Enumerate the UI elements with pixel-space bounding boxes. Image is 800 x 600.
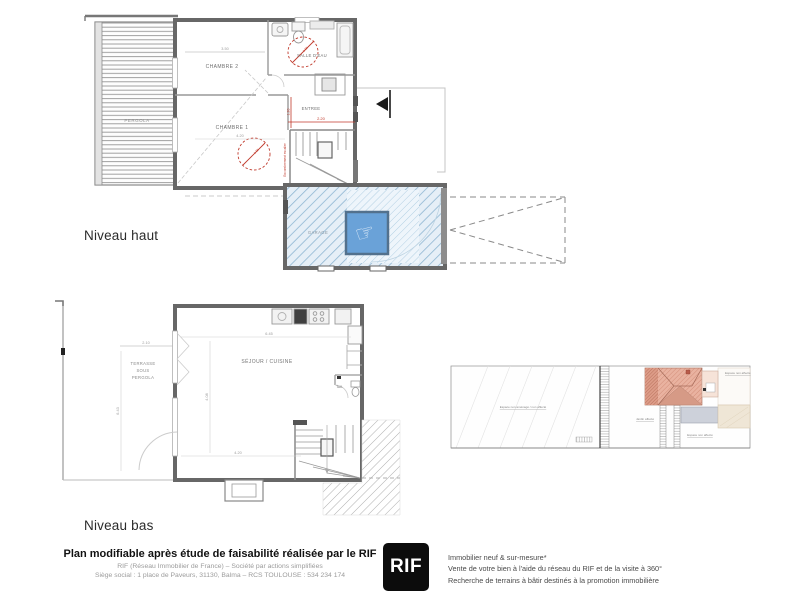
svg-text:3.50: 3.50 (221, 47, 228, 51)
jardin-label: Jardin affecté (636, 417, 654, 421)
fridge-icon (348, 326, 362, 344)
room-label-sejour: SÉJOUR / CUISINE (241, 358, 292, 365)
counter-icon (272, 309, 292, 324)
service-line-1: Immobilier neuf & sur-mesure* (448, 552, 662, 563)
rif-logo: RIF (383, 543, 429, 591)
svg-text:4.20: 4.20 (236, 134, 243, 138)
terrace-label-3: PERGOLA (132, 375, 154, 380)
garage-door (441, 188, 447, 264)
footer-company-line2: Siège social : 1 place de Paveurs, 31130… (58, 571, 382, 581)
terrace-dim-w: 2.10 (142, 341, 149, 345)
terrace-label-2: SOUS (136, 368, 149, 373)
footer-services-block: Immobilier neuf & sur-mesure* Vente de v… (448, 552, 662, 586)
espace-label-bottom: Espace non affecté (687, 433, 713, 437)
oven-icon (294, 309, 307, 324)
lower-level-label: Niveau bas (84, 518, 154, 533)
house-roof: Espace non affecté (645, 368, 751, 405)
lower-level-plan: TERRASSE SOUS PERGOLA 2.10 6.43 Toi (55, 293, 415, 523)
stair-clearance-note: Encombrement escalier (283, 142, 287, 176)
footer-disclaimer: Plan modifiable après étude de faisabili… (58, 548, 382, 562)
boundary-line (357, 88, 445, 172)
entrance-arrow-icon (376, 90, 390, 118)
sink-icon (335, 309, 351, 324)
room-label-toilettes: Toil. (336, 385, 343, 389)
terrace-label-1: TERRASSE (131, 361, 156, 366)
upper-level-plan: PERGOLA (60, 0, 605, 292)
pergola-deck: PERGOLA (85, 16, 180, 185)
terrace-slab (681, 407, 718, 423)
garden-label: Espace non aménagé / non affecté (500, 405, 547, 409)
wc-tank-icon (292, 22, 305, 31)
svg-text:4.20: 4.20 (234, 451, 241, 455)
espace-label-top: Espace non affecté (725, 371, 751, 375)
svg-text:6.45: 6.45 (265, 332, 272, 336)
door-threshold (353, 112, 358, 122)
svg-text:4.08: 4.08 (205, 393, 209, 400)
terrace: TERRASSE SOUS PERGOLA 2.10 6.43 (55, 301, 175, 480)
rif-logo-text: RIF (390, 556, 422, 578)
site-plan: Espace non aménagé / non affecté Jardin … (448, 352, 788, 460)
hob-icon (309, 309, 329, 324)
wc-tank-icon (351, 381, 360, 387)
svg-text:1.20: 1.20 (287, 109, 291, 116)
footer-disclaimer-block: Plan modifiable après étude de faisabili… (58, 548, 382, 581)
sink-icon (272, 23, 288, 36)
entry-stoop (225, 480, 263, 501)
wc-bowl-icon (352, 388, 359, 397)
terrace-dim-h: 6.43 (116, 407, 120, 414)
door-threshold (353, 96, 358, 106)
service-line-2: Vente de votre bien à l'aide du réseau d… (448, 563, 662, 574)
driveway-outline (450, 197, 565, 263)
service-line-3: Recherche de terrains à bâtir destinés à… (448, 575, 662, 586)
shower-icon (337, 23, 353, 57)
cabinet-icon (310, 21, 334, 29)
window-frame (353, 160, 358, 182)
garage: GARAGE ☞ (283, 185, 447, 271)
upper-floor-walls (173, 18, 359, 197)
chimney-icon (686, 370, 690, 374)
room-label-salle-deau: SALLE D'EAU (297, 53, 327, 58)
fixture-icon (322, 78, 336, 91)
pergola-label: PERGOLA (124, 118, 149, 123)
footer-company-line1: RIF (Réseau Immobilier de France) – Soci… (58, 562, 382, 572)
upper-level-label: Niveau haut (84, 228, 158, 243)
svg-text:2.20: 2.20 (317, 116, 326, 121)
room-label-entree: ENTREE (302, 106, 321, 111)
room-label-garage: GARAGE (308, 230, 328, 235)
room-label-chambre1: CHAMBRE 1 (216, 125, 249, 131)
visite-360-hotspot[interactable]: ☞ (346, 212, 388, 254)
room-label-chambre2: CHAMBRE 2 (206, 64, 239, 70)
